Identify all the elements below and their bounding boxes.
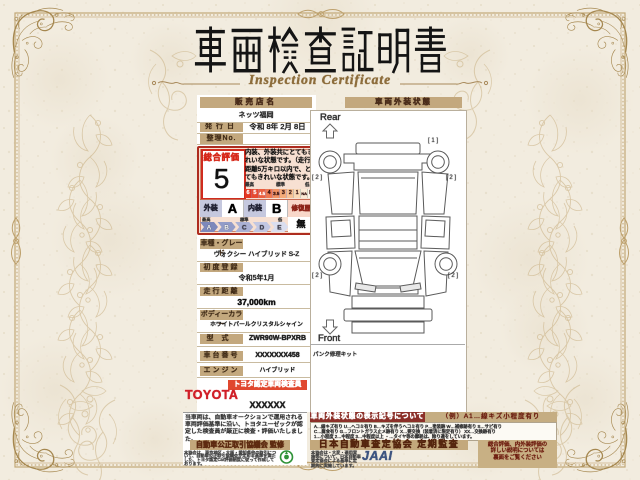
svg-text:[ 2 ]: [ 2 ] [312, 273, 322, 279]
svg-text:C: C [242, 225, 247, 232]
svg-text:A: A [207, 225, 212, 232]
svg-text:[ 2 ]: [ 2 ] [446, 175, 456, 181]
svg-text:[ 2 ]: [ 2 ] [312, 175, 322, 181]
svg-text:B: B [224, 225, 229, 232]
svg-text:[ 1 ]: [ 1 ] [428, 138, 438, 144]
svg-text:D: D [259, 225, 264, 232]
svg-text:[ 2 ]: [ 2 ] [448, 273, 458, 279]
svg-text:E: E [277, 225, 282, 232]
